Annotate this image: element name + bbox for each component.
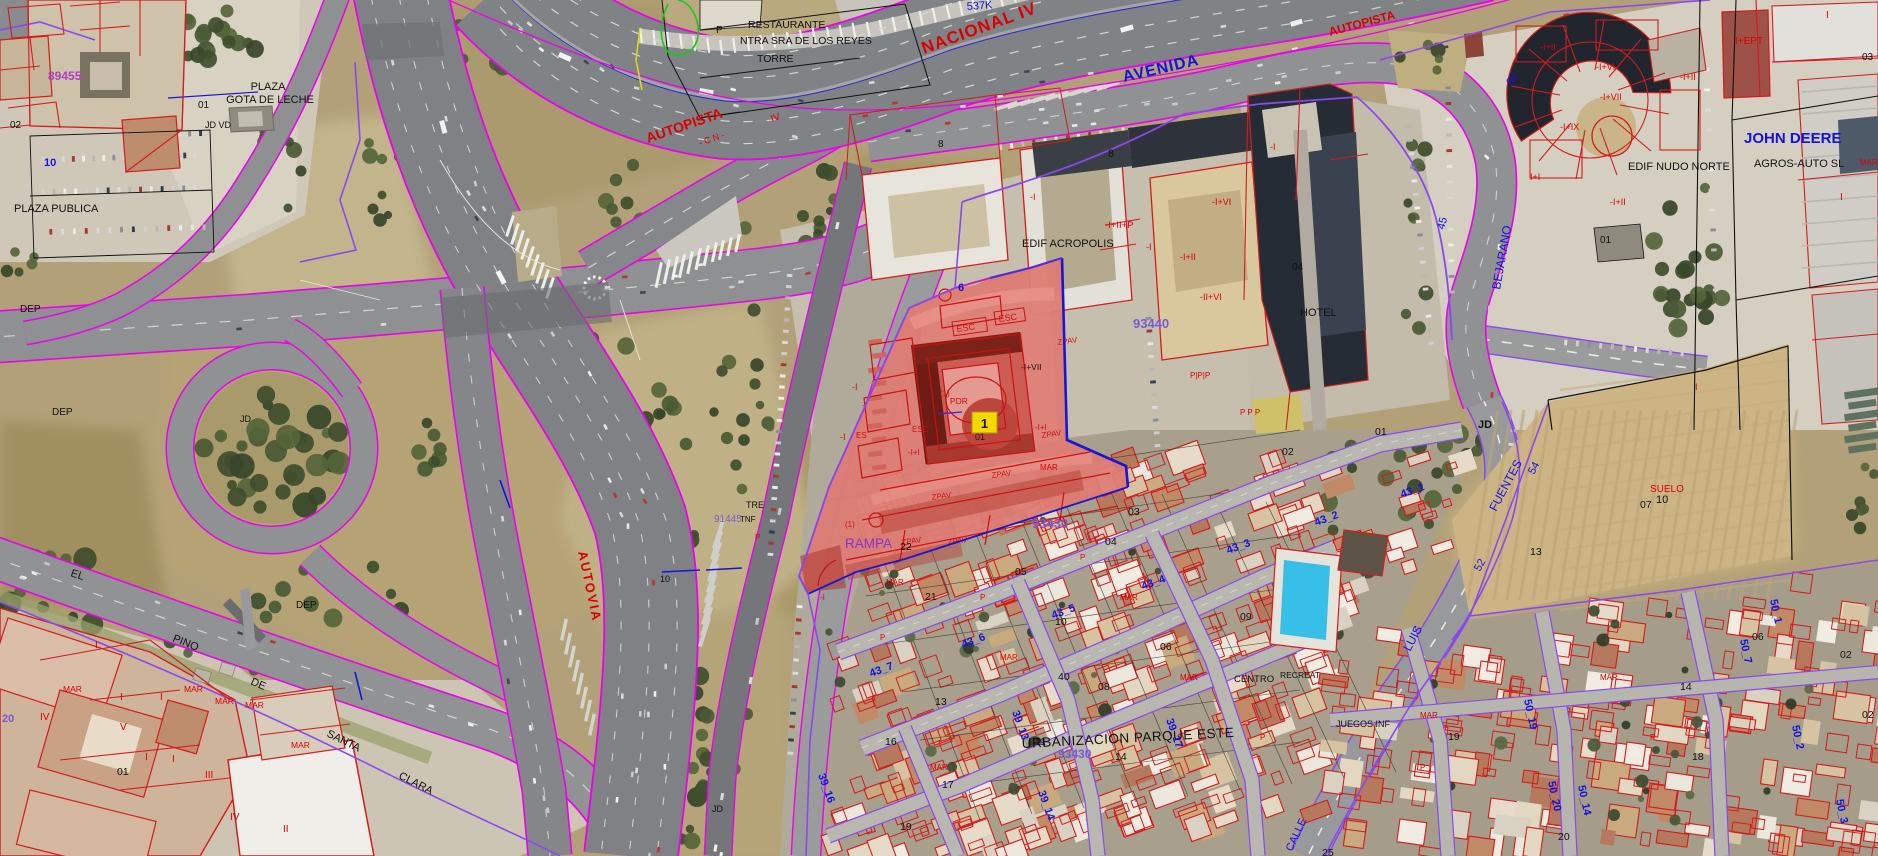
svg-text:91445: 91445: [714, 514, 742, 525]
svg-text:01: 01: [1600, 235, 1612, 246]
svg-text:MAR: MAR: [63, 684, 82, 694]
svg-text:1: 1: [981, 416, 988, 431]
svg-text:I: I: [172, 754, 175, 765]
svg-text:02: 02: [1282, 446, 1294, 458]
svg-text:02: 02: [10, 120, 22, 131]
svg-text:CENTRO: CENTRO: [1234, 674, 1274, 685]
svg-text:8: 8: [1108, 148, 1114, 160]
svg-text:P: P: [980, 593, 985, 602]
svg-text:P: P: [1650, 733, 1655, 742]
svg-text:06: 06: [1752, 631, 1764, 643]
svg-text:TNF: TNF: [740, 515, 756, 524]
svg-text:I: I: [95, 640, 98, 651]
svg-text:MAR: MAR: [1120, 593, 1138, 602]
svg-text:II: II: [283, 824, 289, 835]
svg-text:ESC: ESC: [912, 425, 929, 434]
svg-text:05: 05: [1015, 566, 1027, 578]
svg-text:AGROS-AUTO SL: AGROS-AUTO SL: [1754, 158, 1844, 170]
svg-text:01: 01: [1375, 426, 1387, 438]
svg-text:MAR: MAR: [930, 763, 948, 772]
svg-text:P|P|P: P|P|P: [1190, 371, 1210, 380]
svg-text:IV: IV: [40, 712, 50, 723]
svg-text:MAR: MAR: [245, 700, 264, 710]
svg-text:JD: JD: [240, 414, 252, 424]
svg-text:-I+II+P: -I+II+P: [1105, 220, 1134, 231]
svg-text:10: 10: [1656, 494, 1668, 506]
svg-text:-I: -I: [852, 382, 858, 392]
svg-text:40: 40: [1058, 671, 1070, 683]
svg-text:P: P: [1420, 763, 1425, 772]
svg-text:V: V: [120, 722, 127, 733]
svg-text:14: 14: [1680, 681, 1692, 693]
svg-text:RECREAT: RECREAT: [1280, 670, 1320, 680]
svg-text:-I+I: -I+I: [1035, 423, 1047, 432]
svg-text:IV: IV: [230, 812, 240, 823]
svg-text:MAR: MAR: [1000, 653, 1018, 662]
svg-text:JD: JD: [1478, 419, 1492, 431]
svg-text:JUEGOS INF: JUEGOS INF: [1336, 719, 1391, 729]
svg-text:02: 02: [1862, 709, 1874, 721]
svg-text:08: 08: [1098, 681, 1110, 693]
svg-text:02: 02: [1840, 649, 1852, 661]
svg-text:25: 25: [1322, 847, 1334, 856]
svg-text:93430: 93430: [1058, 747, 1092, 761]
svg-text:8: 8: [938, 139, 944, 150]
svg-text:I: I: [160, 692, 163, 703]
svg-text:MAR: MAR: [291, 740, 310, 750]
svg-text:TORRE: TORRE: [757, 53, 794, 65]
svg-text:DEP: DEP: [296, 600, 317, 611]
svg-text:(1): (1): [940, 389, 950, 398]
svg-text:13: 13: [1530, 546, 1542, 558]
svg-text:MAR: MAR: [215, 696, 234, 706]
svg-text:PLAZA PUBLICA: PLAZA PUBLICA: [14, 203, 99, 215]
svg-text:-I+IX: -I+IX: [1560, 122, 1579, 132]
svg-text:22: 22: [900, 541, 912, 553]
svg-text:11: 11: [1035, 736, 1046, 748]
svg-text:21: 21: [925, 591, 937, 603]
svg-text:03: 03: [1862, 52, 1874, 63]
svg-text:I+EPT: I+EPT: [1735, 36, 1763, 47]
svg-text:P: P: [716, 25, 723, 36]
svg-text:17: 17: [942, 779, 954, 791]
svg-text:MAR: MAR: [1860, 158, 1878, 167]
svg-text:I: I: [1695, 382, 1698, 392]
svg-text:P: P: [1260, 733, 1265, 742]
svg-text:P: P: [1080, 553, 1085, 562]
svg-text:MAR: MAR: [1420, 711, 1438, 720]
svg-text:-I+II: -I+II: [1680, 72, 1696, 82]
svg-text:01: 01: [198, 100, 210, 111]
svg-text:P P P: P P P: [1240, 408, 1260, 417]
svg-text:DEP: DEP: [20, 304, 41, 315]
svg-text:04: 04: [1105, 536, 1117, 548]
svg-text:(1): (1): [845, 520, 855, 529]
svg-text:19: 19: [900, 821, 912, 833]
svg-text:I+I: I+I: [1530, 172, 1540, 182]
svg-text:09: 09: [1240, 611, 1252, 623]
svg-text:JOHN DEERE: JOHN DEERE: [1744, 130, 1842, 147]
svg-text:20: 20: [1558, 831, 1570, 843]
svg-text:16: 16: [885, 736, 897, 748]
svg-text:19: 19: [1448, 731, 1460, 743]
svg-text:04: 04: [1292, 262, 1304, 273]
svg-text:-I+II: -I+II: [1180, 252, 1196, 262]
svg-text:MAR: MAR: [1600, 673, 1618, 682]
svg-text:-I+I: -I+I: [908, 448, 920, 457]
svg-text:93430: 93430: [1032, 516, 1068, 531]
svg-text:-I: -I: [1146, 242, 1152, 252]
svg-text:P: P: [755, 533, 760, 542]
svg-text:I: I: [145, 752, 148, 763]
svg-text:-I+VI: -I+VI: [1212, 197, 1231, 207]
svg-text:10: 10: [660, 574, 670, 584]
svg-text:TRE: TRE: [746, 500, 764, 510]
svg-text:MAR: MAR: [184, 684, 203, 694]
svg-text:13: 13: [935, 696, 947, 708]
svg-text:-I+VII: -I+VII: [1021, 362, 1042, 372]
svg-text:MAR: MAR: [886, 578, 904, 587]
svg-text:-I+II: -I+II: [1610, 197, 1626, 207]
svg-text:07: 07: [1640, 499, 1652, 511]
svg-text:I: I: [120, 692, 123, 703]
svg-text:20: 20: [2, 713, 14, 725]
svg-text:-I: -I: [820, 593, 825, 602]
svg-text:GOTA DE LECHE: GOTA DE LECHE: [226, 94, 314, 106]
svg-text:DEP: DEP: [52, 407, 73, 418]
svg-text:ES: ES: [856, 431, 867, 440]
svg-text:-I: -I: [1030, 192, 1036, 202]
svg-text:10: 10: [1055, 616, 1067, 628]
svg-text:HOTEL: HOTEL: [1300, 307, 1337, 319]
svg-text:EDIF ACROPOLIS: EDIF ACROPOLIS: [1022, 238, 1114, 250]
svg-text:18: 18: [1692, 751, 1704, 763]
svg-text:01: 01: [117, 766, 129, 778]
svg-text:I: I: [1826, 10, 1829, 21]
svg-text:RAMPA: RAMPA: [845, 536, 892, 551]
svg-text:6: 6: [958, 282, 964, 294]
svg-text:-I: -I: [840, 432, 846, 442]
svg-text:I: I: [1840, 192, 1843, 203]
svg-text:PDR: PDR: [950, 396, 968, 406]
svg-text:03: 03: [1128, 506, 1140, 518]
svg-text:III: III: [205, 770, 213, 781]
svg-text:P: P: [880, 633, 885, 642]
svg-text:89455: 89455: [48, 69, 82, 83]
svg-text:MAR: MAR: [1040, 463, 1058, 472]
svg-text:14: 14: [1115, 751, 1127, 763]
svg-text:MAR: MAR: [1180, 673, 1198, 682]
svg-text:NTRA SRA DE LOS REYES: NTRA SRA DE LOS REYES: [740, 35, 872, 47]
svg-text:10: 10: [44, 157, 56, 169]
svg-text:JD: JD: [712, 804, 724, 814]
svg-text:JD VD: JD VD: [205, 120, 232, 130]
svg-text:-II+VI: -II+VI: [1200, 292, 1222, 302]
svg-text:-I+II: -I+II: [1540, 42, 1556, 52]
svg-text:RESTAURANTE: RESTAURANTE: [748, 19, 825, 31]
svg-text:PLAZA: PLAZA: [251, 81, 287, 93]
svg-text:-I+VII: -I+VII: [1600, 92, 1622, 102]
svg-text:-I+VI: -I+VI: [1596, 62, 1615, 72]
svg-text:537K: 537K: [966, 0, 993, 13]
svg-text:-I: -I: [1270, 142, 1276, 152]
svg-text:EDIF NUDO NORTE: EDIF NUDO NORTE: [1628, 161, 1730, 173]
svg-text:93440: 93440: [1133, 316, 1169, 331]
svg-text:06: 06: [1160, 641, 1172, 653]
